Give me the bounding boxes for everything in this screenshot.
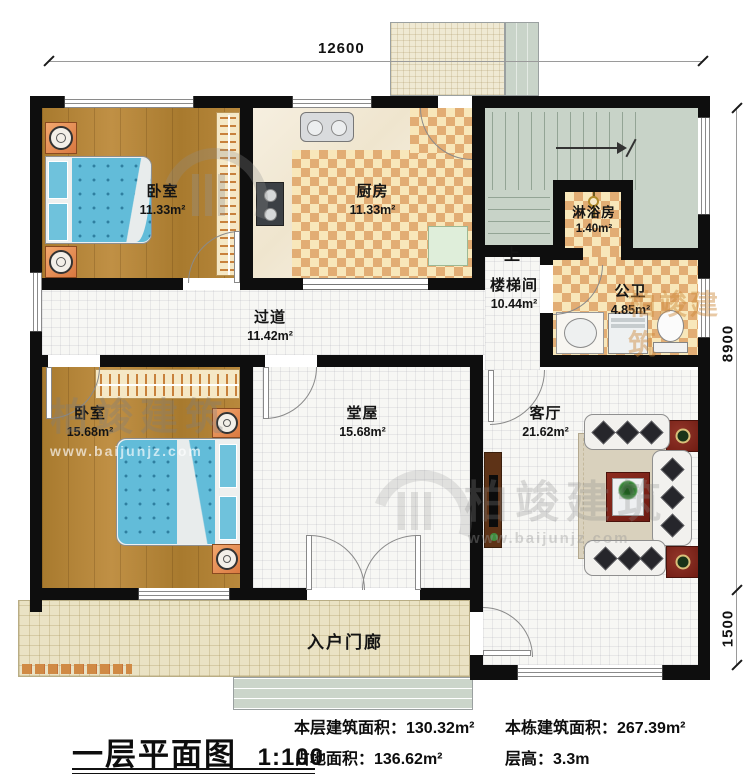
dimension-tick [731,102,742,113]
door-panel [483,650,531,656]
stat-total-area: 本栋建筑面积：267.39m² [505,714,686,738]
wall [30,355,48,367]
sofa-icon [652,450,692,546]
up-text: 上 [492,246,532,267]
window [517,665,663,680]
room-area: 11.42m² [205,328,335,344]
sink-bowl [307,120,323,136]
room-name: 堂屋 [300,404,425,424]
room-label-kitchen: 厨房 11.33m² [310,182,435,218]
stat-footprint-area: 占地面积：136.62m² [294,745,443,769]
room-label-hall: 堂屋 15.68m² [300,404,425,440]
title-underline [72,768,315,774]
room-area: 4.85m² [583,302,678,318]
cushion [617,546,641,570]
cushion [593,546,617,570]
pillow [219,496,237,540]
door-panel [306,535,312,590]
wall [633,248,698,260]
wall [30,588,138,600]
cushion [639,546,663,570]
cushion [660,457,684,481]
wall [663,665,710,680]
toilet-tank [653,342,688,353]
room-name: 公卫 [583,282,678,302]
door-gap [48,355,100,367]
wardrobe-rod [98,384,239,386]
nightstand-icon [212,544,242,574]
wall [470,600,483,612]
door-gap [265,355,317,367]
nightstand-icon [212,408,242,438]
burner [264,189,277,202]
room-name: 客厅 [483,404,608,424]
pillow [48,161,68,199]
room-name: 楼梯间 [458,276,570,296]
room-area: 1.40m² [556,222,632,237]
wall [553,180,633,192]
lamp-icon [49,126,73,150]
wall [472,108,485,290]
wall [240,108,253,290]
floor-plan-canvas: 卧室 11.33m² 厨房 11.33m² 淋浴房 1.40m² 上 楼梯间 1… [0,0,750,780]
stair-arrow [556,147,620,149]
washer-panel [611,318,645,322]
wall [470,655,483,680]
room-label-corridor: 过道 11.42m² [205,308,335,344]
wall [470,355,483,600]
dimension-top-value: 12600 [318,40,365,57]
room-area: 11.33m² [100,202,225,218]
window [698,117,710,215]
room-name: 卧室 [100,182,225,202]
window [30,272,42,332]
kitchen-sink-icon [300,112,354,142]
stairs-landing [633,192,698,248]
wall [553,248,583,260]
room-label-bathroom: 公卫 4.85m² [583,282,678,318]
room-label-stairwell: 楼梯间 10.44m² [458,276,570,312]
bed-icon [116,438,242,546]
burner [264,208,277,221]
plant-icon [618,480,638,500]
kitchen-table-icon [428,226,468,266]
room-area: 10.44m² [458,296,570,312]
stove-icon [256,182,284,226]
porch-column-dots [22,664,132,674]
wall [30,278,183,290]
door-gap [438,96,472,108]
dimension-line-top [48,61,703,62]
dimension-tick [731,584,742,595]
washer-panel [611,324,645,328]
cushion [660,485,684,509]
plant-icon [490,533,498,541]
wall [317,355,470,367]
wall [230,588,307,600]
step [234,689,472,698]
window [64,96,194,108]
dimension-line-right [736,108,737,665]
room-name: 入户门廊 [270,632,420,654]
pillow [48,203,68,241]
side-table-icon [666,420,700,452]
room-label-shower: 淋浴房 1.40m² [556,204,632,236]
cushion [639,420,663,444]
window [138,588,230,600]
entry-steps [233,677,473,710]
basin [564,318,597,348]
wall [240,355,253,600]
vanity-sink-icon [556,312,604,354]
sofa-icon [584,540,666,576]
dimension-right-lower-value: 1500 [720,599,737,659]
stat-floor-height: 层高：3.3m [505,745,589,769]
lamp-icon [49,250,73,274]
lamp-icon [216,548,238,570]
room-label-living: 客厅 21.62m² [483,404,608,440]
lamp-icon [216,412,238,434]
room-area: 15.68m² [30,424,150,440]
room-area: 21.62m² [483,424,608,440]
door-panel [415,535,421,590]
gold-ring [676,429,691,444]
tv-icon [489,475,498,527]
wall [253,278,303,290]
room-name: 厨房 [310,182,435,202]
plan-title-text: 一层平面图 [72,737,237,772]
washing-machine-icon [608,313,648,354]
side-table-icon [666,546,700,578]
window [698,278,710,338]
window [292,96,372,108]
door-panel [263,367,269,419]
rear-steps [505,22,539,96]
sheet-fold [177,440,215,544]
stair-treads-lower [488,194,550,246]
stairs-up-label: 上 [492,246,532,267]
tv-cabinet-icon [484,452,502,548]
nightstand-icon [45,122,77,154]
stairwell-floor [485,257,540,370]
room-area: 15.68m² [300,424,425,440]
wall [483,665,517,680]
cushion [660,513,684,537]
step [234,699,472,708]
nightstand-icon [45,246,77,278]
room-label-porch: 入户门廊 [270,632,420,654]
dimension-right-upper-value: 8900 [720,314,737,374]
dimension-tick [731,659,742,670]
wardrobe-icon [95,369,240,399]
wall [540,355,710,367]
wall [420,588,483,600]
step [234,679,472,688]
cushion [615,420,639,444]
room-area: 11.33m² [310,202,435,218]
door-gap [470,612,483,655]
room-label-bedroom2: 卧室 15.68m² [30,404,150,440]
room-name: 过道 [205,308,335,328]
room-name: 卧室 [30,404,150,424]
sink-bowl [331,120,347,136]
stat-floor-area: 本层建筑面积：130.32m² [294,714,475,738]
room-name: 淋浴房 [556,204,632,222]
door-panel [234,231,240,283]
pillow [219,444,237,488]
room-label-bedroom1: 卧室 11.33m² [100,182,225,218]
sliding-door [303,278,428,290]
gold-ring [676,555,691,570]
rear-terrace [390,22,505,96]
wall [30,96,42,612]
